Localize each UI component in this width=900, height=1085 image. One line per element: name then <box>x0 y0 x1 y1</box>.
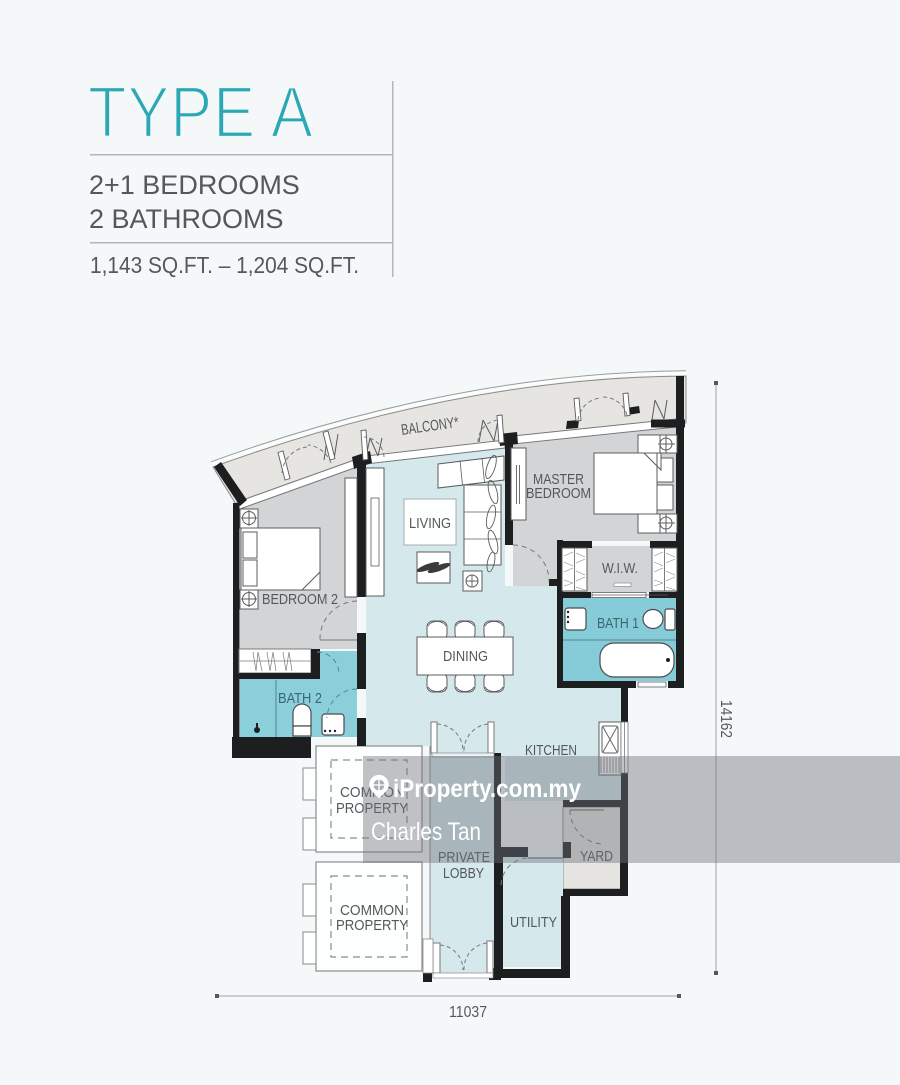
svg-text:1,143 SQ.FT. – 1,204 SQ.FT.: 1,143 SQ.FT. – 1,204 SQ.FT. <box>90 252 359 278</box>
svg-text:W.I.W.: W.I.W. <box>602 560 638 577</box>
svg-text:14162: 14162 <box>717 700 734 738</box>
svg-text:UTILITY: UTILITY <box>510 914 557 931</box>
svg-text:TYPE A: TYPE A <box>88 73 314 153</box>
svg-text:11037: 11037 <box>449 1004 487 1021</box>
svg-text:LIVING: LIVING <box>409 515 451 532</box>
svg-text:BATH 2: BATH 2 <box>278 690 322 707</box>
svg-text:BEDROOM: BEDROOM <box>526 485 591 502</box>
svg-text:Charles Tan: Charles Tan <box>371 818 481 846</box>
svg-text:iProperty.com.my: iProperty.com.my <box>393 775 581 803</box>
svg-text:LOBBY: LOBBY <box>443 865 484 882</box>
svg-text:2+1 BEDROOMS: 2+1 BEDROOMS <box>89 170 300 200</box>
svg-text:PROPERTY: PROPERTY <box>336 917 408 934</box>
svg-text:BATH 1: BATH 1 <box>597 615 639 632</box>
svg-text:BEDROOM 2: BEDROOM 2 <box>262 591 338 608</box>
svg-text:DINING: DINING <box>443 648 488 665</box>
svg-text:2 BATHROOMS: 2 BATHROOMS <box>89 204 284 234</box>
